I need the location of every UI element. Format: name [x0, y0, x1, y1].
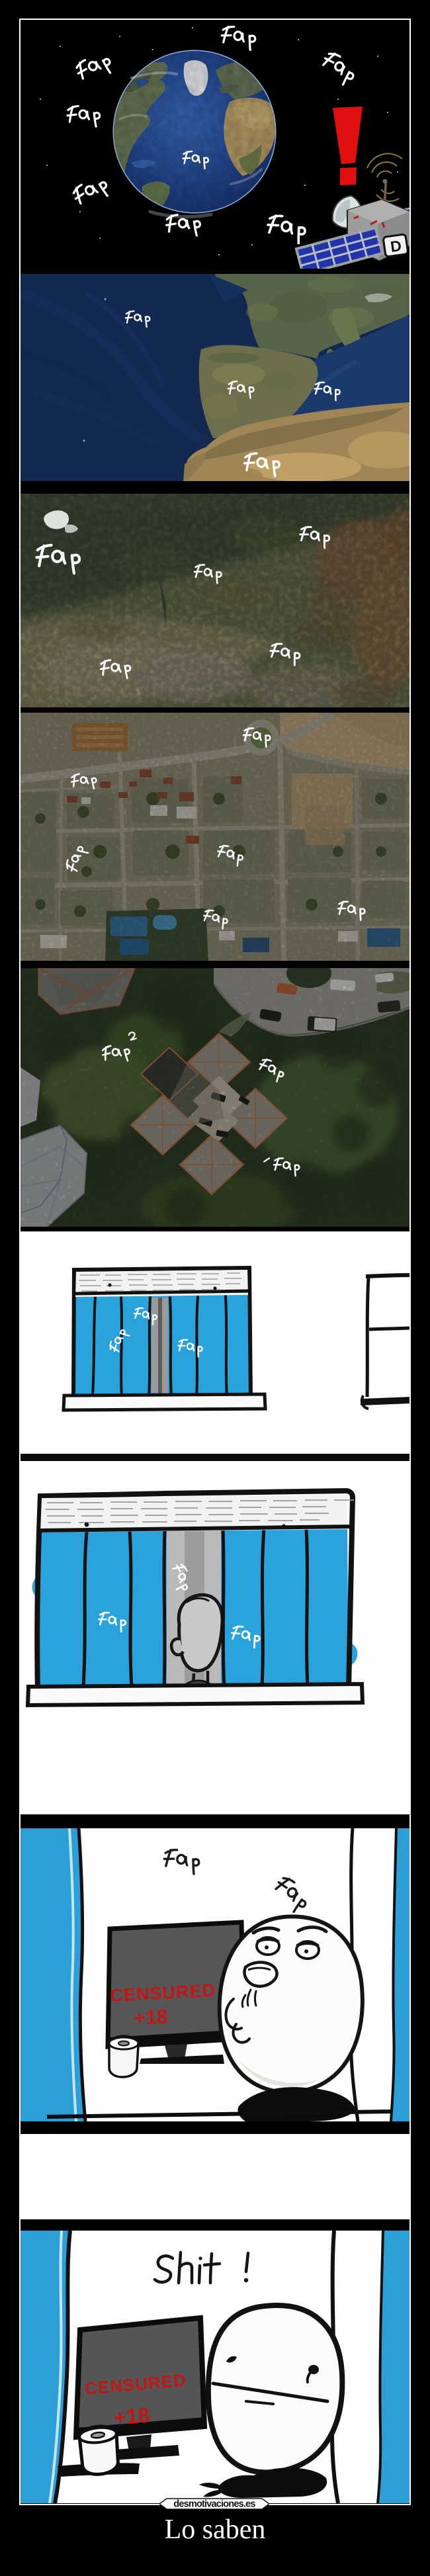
svg-text:+18: +18	[112, 2403, 150, 2430]
svg-text:desmotivaciones.es: desmotivaciones.es	[173, 2499, 255, 2510]
svg-text:+18: +18	[134, 2006, 169, 2029]
